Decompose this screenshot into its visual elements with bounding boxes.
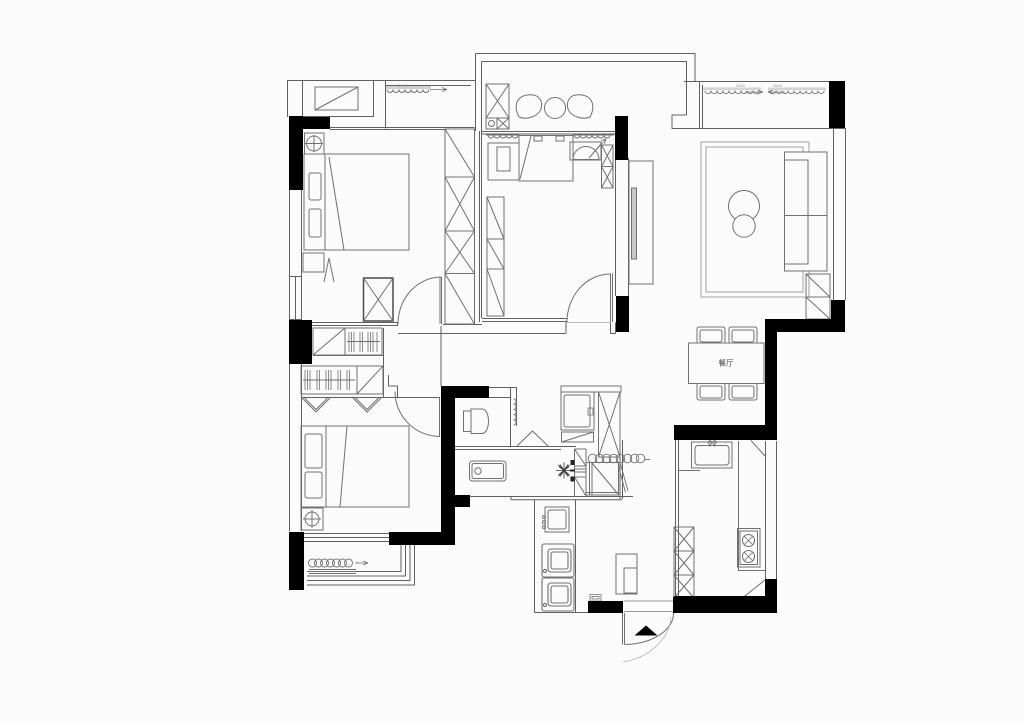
svg-text:2845: 2845	[736, 83, 746, 88]
svg-text:C: C	[356, 560, 359, 565]
svg-text:餐厅: 餐厅	[719, 359, 734, 368]
svg-text:C2015: C2015	[396, 83, 409, 88]
svg-text:2845: 2845	[773, 83, 783, 88]
